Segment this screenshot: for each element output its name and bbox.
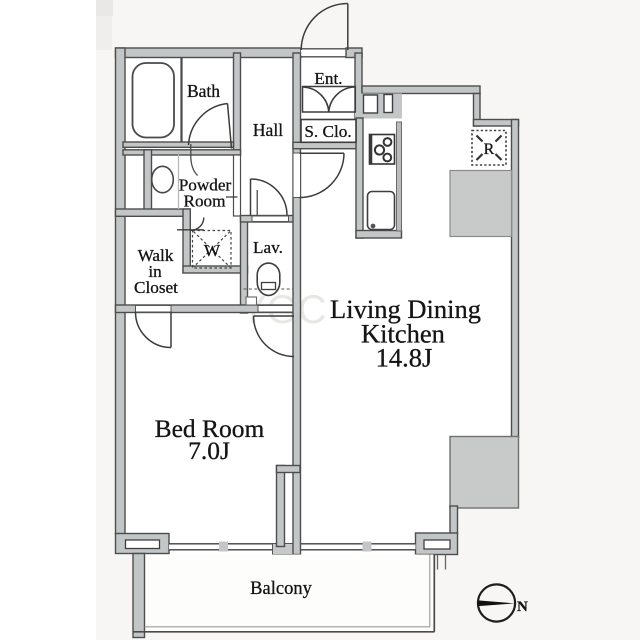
svg-text:N: N: [517, 599, 528, 615]
svg-text:Balcony: Balcony: [250, 579, 312, 599]
svg-text:7.0J: 7.0J: [188, 436, 230, 465]
svg-text:Bath: Bath: [187, 81, 220, 101]
svg-text:Ent.: Ent.: [314, 69, 342, 88]
svg-text:Hall: Hall: [253, 120, 283, 140]
svg-text:Closet: Closet: [134, 278, 178, 297]
svg-text:Lav.: Lav.: [253, 238, 283, 257]
svg-text:14.8J: 14.8J: [376, 343, 433, 373]
svg-text:R: R: [484, 141, 495, 158]
svg-text:S. Clo.: S. Clo.: [304, 122, 351, 141]
svg-text:W: W: [204, 241, 221, 260]
svg-text:Room: Room: [183, 192, 226, 211]
